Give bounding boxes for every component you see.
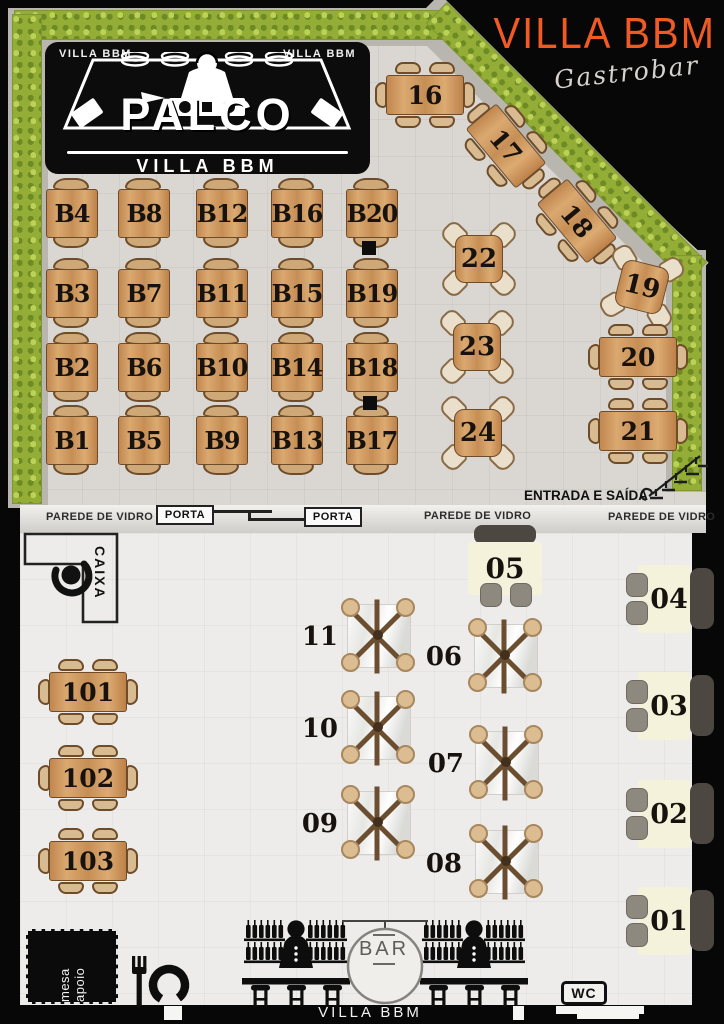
stage-title: PALCO (45, 89, 370, 141)
chair-icon (396, 598, 415, 617)
table-hub (373, 722, 383, 732)
table-hub (373, 630, 383, 640)
bar-sign-line (373, 963, 395, 965)
chair-icon (468, 673, 487, 692)
x-table-08[interactable] (467, 822, 545, 900)
chair-icon (608, 324, 634, 336)
x-table-07[interactable] (467, 723, 545, 801)
table-label: 08 (424, 849, 462, 879)
table-label: 24 (454, 409, 502, 457)
x-table-11[interactable] (339, 596, 417, 674)
table-22[interactable]: 22 (443, 223, 515, 295)
booth-02[interactable]: 02 (626, 780, 714, 848)
table-103[interactable]: 103 (38, 828, 138, 894)
table-label: B1 (46, 416, 98, 465)
chair-icon (469, 879, 488, 898)
table-b9[interactable]: B9 (195, 405, 247, 475)
chair-icon (126, 848, 138, 874)
chair-icon (92, 882, 118, 894)
stage-subtitle: VILLA BBM (45, 156, 370, 177)
bench-icon (690, 890, 714, 951)
table-b16[interactable]: B16 (270, 178, 322, 248)
floorplan: VILLA BBM Gastrobar VILLA BBM VILLA BBM … (0, 0, 724, 1024)
chair-icon (469, 725, 488, 744)
stage-divider-line (67, 151, 348, 154)
table-b12[interactable]: B12 (195, 178, 247, 248)
door-marker (577, 1012, 639, 1019)
table-20[interactable]: 20 (588, 324, 688, 390)
chair-icon (92, 828, 118, 840)
chair-icon (58, 799, 84, 811)
table-label: B19 (346, 269, 398, 318)
chair-icon (58, 713, 84, 725)
table-b18[interactable]: B18 (345, 332, 397, 402)
chair-icon (524, 780, 543, 799)
chair-icon (126, 679, 138, 705)
table-label: B15 (271, 269, 323, 318)
booth-04[interactable]: 04 (626, 565, 714, 633)
chair-icon (92, 659, 118, 671)
chair-icon (608, 378, 634, 390)
table-label: 102 (49, 758, 127, 798)
chair-icon (642, 378, 668, 390)
chair-icon (676, 418, 688, 444)
table-b13[interactable]: B13 (270, 405, 322, 475)
table-b17[interactable]: B17 (345, 405, 397, 475)
chair-icon (523, 618, 542, 637)
table-label: 09 (300, 809, 338, 839)
chair-icon (58, 659, 84, 671)
bench-icon (690, 675, 714, 736)
chair-icon (642, 398, 668, 410)
chair-icon (126, 765, 138, 791)
table-label: 101 (49, 672, 127, 712)
table-label: 16 (386, 75, 464, 115)
table-b5[interactable]: B5 (117, 405, 169, 475)
chair-icon (341, 653, 360, 672)
table-label: B6 (118, 343, 170, 392)
booth-label: 02 (638, 780, 690, 848)
chair-icon (463, 82, 475, 108)
door-marker (164, 1006, 182, 1020)
hedge-icon (12, 14, 42, 504)
chair-icon (396, 840, 415, 859)
table-hub (501, 757, 511, 767)
chair-icon (608, 398, 634, 410)
table-label: B14 (271, 343, 323, 392)
chair-icon (468, 618, 487, 637)
table-label: B3 (46, 269, 98, 318)
wc-room: WC (561, 981, 607, 1005)
chair-icon (523, 673, 542, 692)
chair-icon (395, 62, 421, 74)
table-b6[interactable]: B6 (117, 332, 169, 402)
table-label: 11 (300, 622, 338, 652)
booth-label: 04 (638, 565, 690, 633)
table-label: B9 (196, 416, 248, 465)
table-b2[interactable]: B2 (45, 332, 97, 402)
door-right: PORTA (304, 507, 362, 527)
table-b14[interactable]: B14 (270, 332, 322, 402)
chair-icon (469, 824, 488, 843)
table-102[interactable]: 102 (38, 745, 138, 811)
chair-icon (396, 690, 415, 709)
chair-icon (396, 785, 415, 804)
table-label: 10 (300, 714, 338, 744)
table-label: B20 (346, 189, 398, 238)
door-left: PORTA (156, 505, 214, 525)
table-b3[interactable]: B3 (45, 258, 97, 328)
table-label: 05 (468, 542, 542, 595)
hedge-icon (14, 10, 448, 40)
table-label: 103 (49, 841, 127, 881)
chair-icon (396, 745, 415, 764)
bar-sign: BAR (352, 934, 416, 965)
table-101[interactable]: 101 (38, 659, 138, 725)
table-24[interactable]: 24 (442, 397, 514, 469)
chair-icon (341, 598, 360, 617)
chair-icon (676, 344, 688, 370)
marker-square (363, 396, 377, 410)
chair-icon (341, 690, 360, 709)
table-label: B7 (118, 269, 170, 318)
table-b10[interactable]: B10 (195, 332, 247, 402)
table-hub (500, 650, 510, 660)
booth-label: 03 (638, 672, 690, 740)
stage-banner: VILLA BBM VILLA BBM PALCO VILLA BBM (45, 42, 370, 174)
table-label: B8 (118, 189, 170, 238)
table-05[interactable]: 05 (466, 525, 544, 609)
table-label: B11 (196, 269, 248, 318)
glass-wall-label: PAREDE DE VIDRO (424, 510, 531, 522)
table-label: B10 (196, 343, 248, 392)
support-table-label: mesa apoio (57, 931, 87, 1002)
booth-01[interactable]: 01 (626, 887, 714, 955)
table-label: B2 (46, 343, 98, 392)
chair-icon (92, 713, 118, 725)
glass-wall-label: PAREDE DE VIDRO (46, 511, 153, 523)
table-label: B12 (196, 189, 248, 238)
chair-icon (396, 653, 415, 672)
chair-icon (524, 824, 543, 843)
table-label: B13 (271, 416, 323, 465)
bottom-brand: VILLA BBM (280, 1004, 460, 1021)
glass-wall-label: PAREDE DE VIDRO (608, 511, 715, 523)
table-label: 23 (453, 323, 501, 371)
x-table-06[interactable] (466, 616, 544, 694)
booth-03[interactable]: 03 (626, 672, 714, 740)
table-b20[interactable]: B20 (345, 178, 397, 248)
chair-icon (524, 879, 543, 898)
chair-icon (608, 452, 634, 464)
chair-icon (58, 882, 84, 894)
table-label: B16 (271, 189, 323, 238)
chair-icon (642, 324, 668, 336)
marker-square (362, 241, 376, 255)
booth-label: 01 (638, 887, 690, 955)
table-label: 22 (455, 235, 503, 283)
fork-plate-icon (124, 954, 192, 1012)
chair-icon (341, 745, 360, 764)
table-label: 21 (599, 411, 677, 451)
x-table-10[interactable] (339, 688, 417, 766)
chair-icon (341, 840, 360, 859)
table-b1[interactable]: B1 (45, 405, 97, 475)
chair-icon (395, 116, 421, 128)
table-hub (501, 856, 511, 866)
chair-icon (524, 725, 543, 744)
door-track (214, 510, 272, 513)
door-marker (513, 1006, 524, 1020)
table-b7[interactable]: B7 (117, 258, 169, 328)
table-label: B18 (346, 343, 398, 392)
table-b15[interactable]: B15 (270, 258, 322, 328)
cashier-label: CAIXA (92, 546, 108, 622)
door-track (248, 518, 306, 521)
chair-icon (429, 62, 455, 74)
chair-icon (341, 785, 360, 804)
support-table[interactable]: mesa apoio (26, 929, 118, 1004)
bench-icon (690, 568, 714, 629)
chair-icon (92, 745, 118, 757)
x-table-09[interactable] (339, 783, 417, 861)
table-23[interactable]: 23 (441, 311, 513, 383)
wc-label: WC (571, 985, 596, 1001)
table-b4[interactable]: B4 (45, 178, 97, 248)
table-label: 06 (424, 642, 462, 672)
chair-icon (58, 745, 84, 757)
chair-icon (469, 780, 488, 799)
table-label: B17 (346, 416, 398, 465)
chair-icon (92, 799, 118, 811)
bar-sign-label: BAR (359, 938, 409, 961)
staircase-icon (638, 450, 710, 508)
table-b11[interactable]: B11 (195, 258, 247, 328)
table-label: B4 (46, 189, 98, 238)
chair-icon (58, 828, 84, 840)
table-label: B5 (118, 416, 170, 465)
table-b19[interactable]: B19 (345, 258, 397, 328)
bar-sign-line (373, 934, 395, 936)
entrance-label: ENTRADA E SAÍDA (490, 488, 648, 503)
table-b8[interactable]: B8 (117, 178, 169, 248)
table-label: 07 (426, 749, 464, 779)
bench-icon (690, 783, 714, 844)
table-hub (373, 817, 383, 827)
table-label: 20 (599, 337, 677, 377)
